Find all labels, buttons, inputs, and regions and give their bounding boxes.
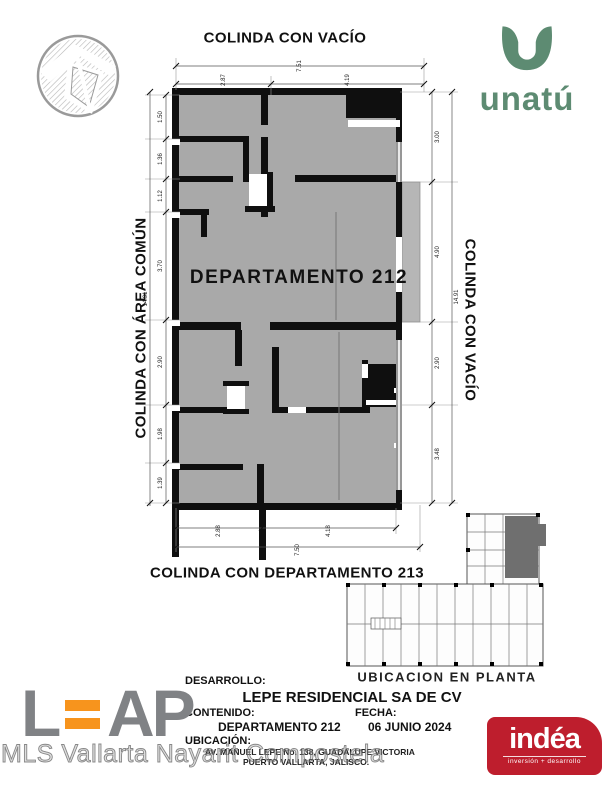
mls-watermark: MLS Vallarta Nayarit Compostela xyxy=(1,740,384,769)
unatu-wordmark: unatú xyxy=(452,80,602,118)
dim-left-2: 1.36 xyxy=(158,153,164,165)
unit-label: DEPARTAMENTO 212 xyxy=(190,267,408,289)
unatu-u-icon xyxy=(499,24,555,76)
dim-left-4: 3.70 xyxy=(158,260,164,272)
dim-right-4: 3.48 xyxy=(435,448,441,460)
dim-right-3: 2.90 xyxy=(435,357,441,369)
floor-plan-sheet: unatú COLINDA CON VACÍO COLINDA CON ÁREA… xyxy=(0,0,612,792)
contenido-label: CONTENIDO: xyxy=(185,707,255,719)
desarrollo-value: LEPE RESIDENCIAL SA DE CV xyxy=(242,689,461,706)
indea-wordmark: indéa xyxy=(487,725,602,754)
location-key-plan xyxy=(340,505,555,673)
floor-plan-drawing xyxy=(140,50,470,570)
dim-top-2: 4.19 xyxy=(345,74,351,86)
dim-left-1: 1.50 xyxy=(158,111,164,123)
fecha-value: 06 JUNIO 2024 xyxy=(368,720,451,734)
indea-tagline: inversión + desarrollo xyxy=(487,758,602,765)
dim-right-overall: 14.91 xyxy=(454,289,460,304)
boundary-label-top: COLINDA CON VACÍO xyxy=(204,30,367,47)
dim-left-6: 1.98 xyxy=(158,428,164,440)
fecha-label: FECHA: xyxy=(355,707,397,719)
dim-left-overall: 14.91 xyxy=(143,291,149,306)
architect-seal-icon xyxy=(30,28,126,124)
indea-divider xyxy=(503,756,586,757)
contenido-value: DEPARTAMENTO 212 xyxy=(218,720,341,734)
dim-bottom-overall: 7.50 xyxy=(295,544,301,556)
dim-top-1: 2.87 xyxy=(221,74,227,86)
dim-bottom-2: 4.18 xyxy=(326,525,332,537)
leap-letter-l: L xyxy=(21,680,58,746)
dim-right-1: 3.00 xyxy=(435,131,441,143)
dim-left-3: 1.12 xyxy=(158,190,164,202)
dim-left-5: 2.90 xyxy=(158,356,164,368)
dim-left-7: 1.39 xyxy=(158,477,164,489)
dim-top-overall: 7.51 xyxy=(297,60,303,72)
dim-bottom-1: 2.88 xyxy=(216,525,222,537)
indea-logo: indéa inversión + desarrollo xyxy=(487,717,602,775)
leap-e-bar-top xyxy=(65,700,100,711)
dim-right-2: 4.90 xyxy=(435,246,441,258)
leap-letters-ap: AP xyxy=(107,680,193,746)
leap-e-bar-bottom xyxy=(65,718,100,729)
location-plan-caption: UBICACION EN PLANTA xyxy=(357,670,536,685)
unatu-logo: unatú xyxy=(452,24,602,118)
desarrollo-label: DESARROLLO: xyxy=(185,675,266,687)
